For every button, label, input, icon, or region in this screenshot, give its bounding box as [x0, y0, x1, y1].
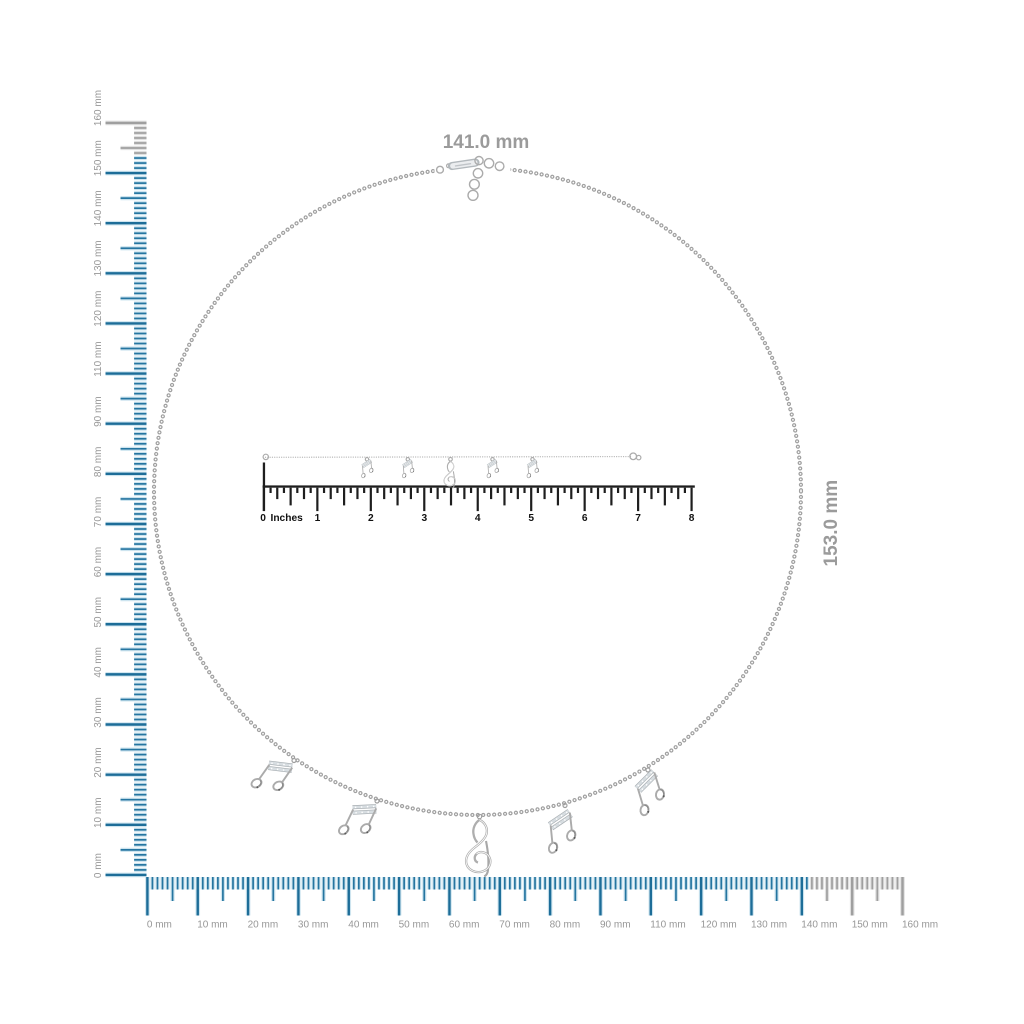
svg-text:4: 4: [475, 513, 481, 524]
svg-text:150 mm: 150 mm: [852, 920, 888, 931]
svg-text:60 mm: 60 mm: [93, 547, 104, 578]
svg-text:160 mm: 160 mm: [93, 90, 104, 126]
svg-text:2: 2: [368, 513, 374, 524]
svg-text:30 mm: 30 mm: [93, 697, 104, 728]
svg-text:70 mm: 70 mm: [93, 497, 104, 528]
svg-text:141.0 mm: 141.0 mm: [443, 132, 530, 153]
svg-text:130 mm: 130 mm: [751, 920, 787, 931]
svg-text:20 mm: 20 mm: [93, 747, 104, 778]
svg-text:90 mm: 90 mm: [600, 920, 631, 931]
svg-text:130 mm: 130 mm: [93, 240, 104, 276]
svg-text:50 mm: 50 mm: [399, 920, 430, 931]
svg-text:7: 7: [635, 513, 641, 524]
svg-text:10 mm: 10 mm: [93, 797, 104, 828]
svg-text:1: 1: [315, 513, 321, 524]
svg-text:6: 6: [582, 513, 588, 524]
svg-text:10 mm: 10 mm: [197, 920, 228, 931]
svg-text:40 mm: 40 mm: [93, 647, 104, 678]
svg-text:120 mm: 120 mm: [93, 291, 104, 327]
svg-text:110 mm: 110 mm: [650, 920, 685, 931]
svg-text:153.0 mm: 153.0 mm: [821, 480, 842, 567]
svg-text:40 mm: 40 mm: [348, 920, 379, 931]
svg-text:70 mm: 70 mm: [499, 920, 530, 931]
svg-text:60 mm: 60 mm: [449, 920, 480, 931]
svg-text:120 mm: 120 mm: [701, 920, 737, 931]
svg-text:160 mm: 160 mm: [902, 920, 938, 931]
svg-text:80 mm: 80 mm: [93, 447, 104, 478]
svg-text:0: 0: [260, 513, 266, 524]
svg-text:50 mm: 50 mm: [93, 597, 104, 628]
svg-text:0 mm: 0 mm: [147, 920, 172, 931]
svg-text:110 mm: 110 mm: [93, 341, 104, 376]
svg-text:0 mm: 0 mm: [93, 853, 104, 878]
svg-text:8: 8: [689, 513, 695, 524]
svg-text:90 mm: 90 mm: [93, 396, 104, 427]
svg-text:Inches: Inches: [271, 513, 304, 524]
svg-text:140 mm: 140 mm: [801, 920, 837, 931]
svg-text:5: 5: [528, 513, 534, 524]
svg-text:20 mm: 20 mm: [248, 920, 279, 931]
svg-text:30 mm: 30 mm: [298, 920, 329, 931]
svg-text:140 mm: 140 mm: [93, 190, 104, 226]
svg-text:150 mm: 150 mm: [93, 140, 104, 176]
svg-text:80 mm: 80 mm: [550, 920, 581, 931]
svg-text:3: 3: [421, 513, 427, 524]
